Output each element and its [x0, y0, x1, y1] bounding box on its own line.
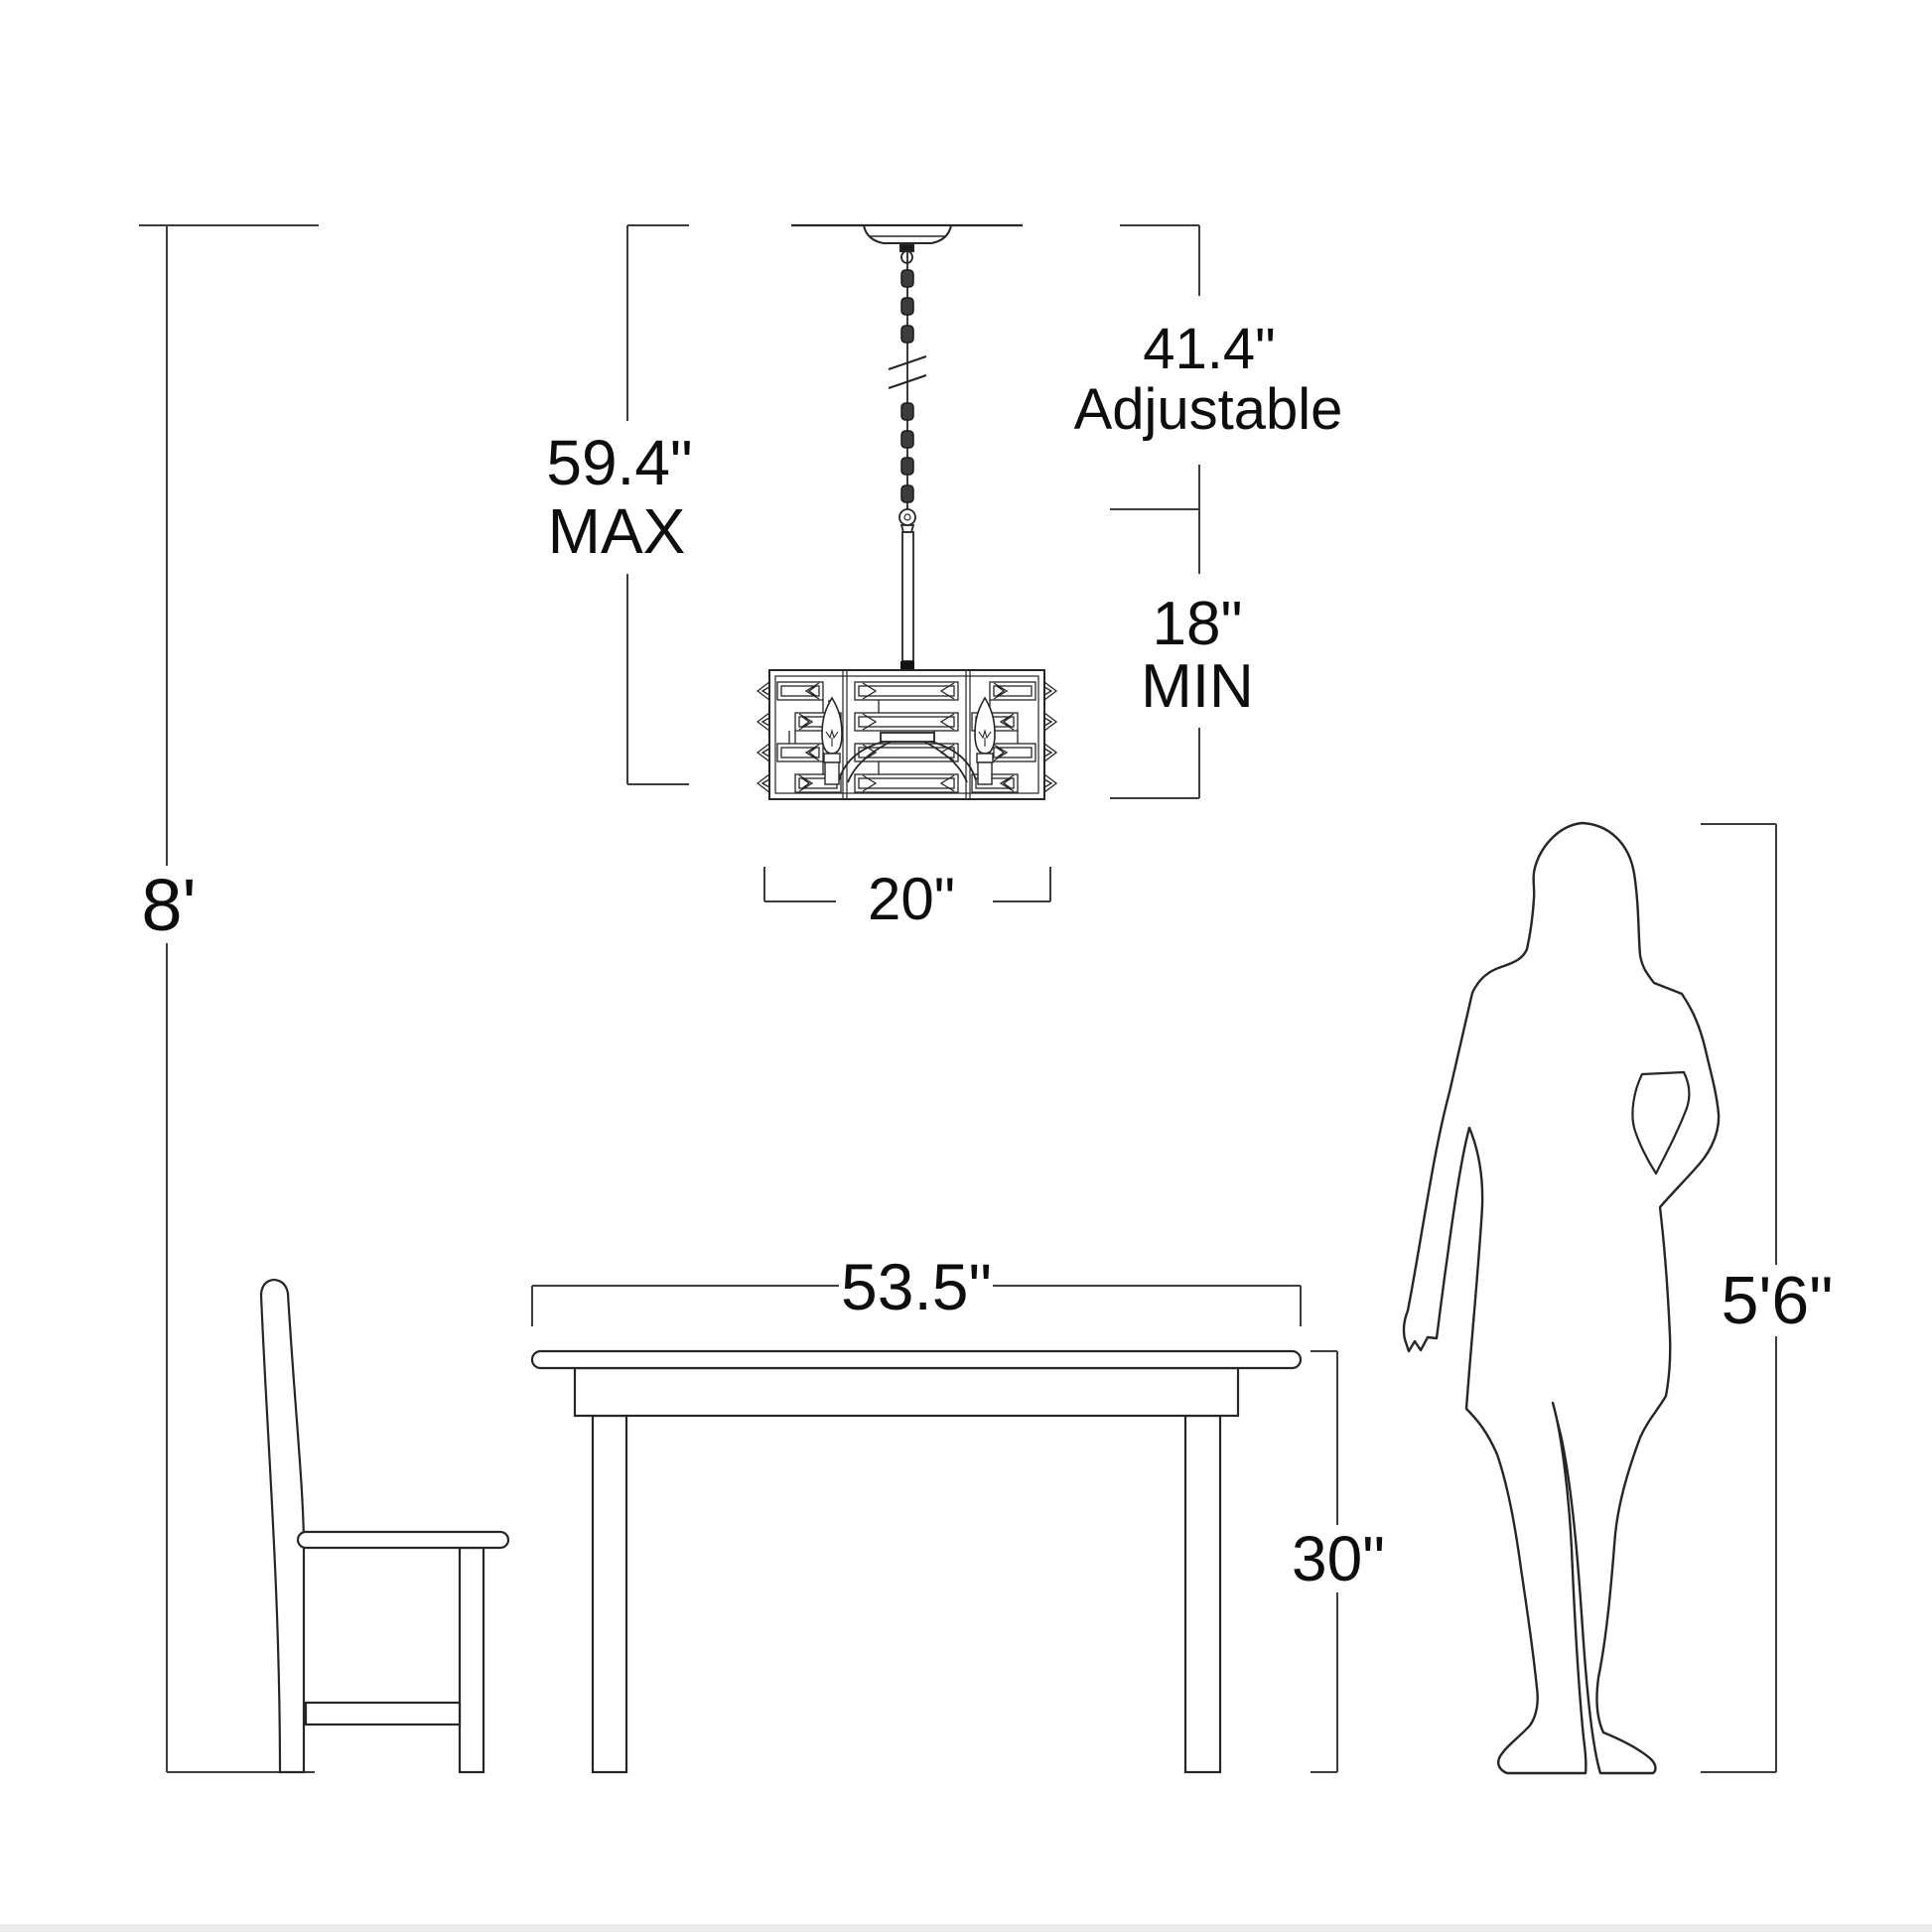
- chair-back-post: [261, 1280, 304, 1772]
- label-max-qualifier: MAX: [548, 499, 686, 563]
- chair: [261, 1280, 508, 1772]
- chandelier: [758, 225, 1056, 799]
- diagram-line-art: [0, 0, 1932, 1932]
- table-leg-left: [593, 1416, 626, 1772]
- fixture-body: [758, 670, 1056, 799]
- dining-table: [532, 1351, 1301, 1772]
- candle-bulb-left: [822, 698, 842, 784]
- chair-front-leg: [460, 1548, 483, 1772]
- label-ceiling-height: 8': [141, 869, 196, 942]
- table-apron: [575, 1368, 1238, 1416]
- table-top: [532, 1351, 1301, 1368]
- label-max-value: 59.4": [546, 431, 692, 494]
- label-table-height: 30": [1292, 1527, 1385, 1590]
- candle-bulb-right: [975, 698, 995, 784]
- chair-seat: [298, 1532, 508, 1548]
- label-adjustable-value: 41.4": [1143, 321, 1275, 378]
- dimension-diagram: 8' 59.4" MAX 41.4" Adjustable 18" MIN 20…: [0, 0, 1932, 1932]
- label-adjustable-qualifier: Adjustable: [1074, 381, 1343, 439]
- chain: [889, 250, 926, 532]
- chair-stretcher: [306, 1703, 460, 1725]
- swivel-connector: [899, 509, 915, 532]
- label-table-width: 53.5": [841, 1254, 992, 1319]
- label-person-height: 5'6": [1722, 1267, 1834, 1334]
- person-silhouette: [1404, 823, 1719, 1773]
- label-min-value: 18": [1153, 594, 1243, 655]
- label-fixture-width: 20": [868, 870, 955, 929]
- table-leg-right: [1185, 1416, 1220, 1772]
- label-min-qualifier: MIN: [1141, 656, 1254, 718]
- bottom-edge-strip: [0, 1924, 1932, 1932]
